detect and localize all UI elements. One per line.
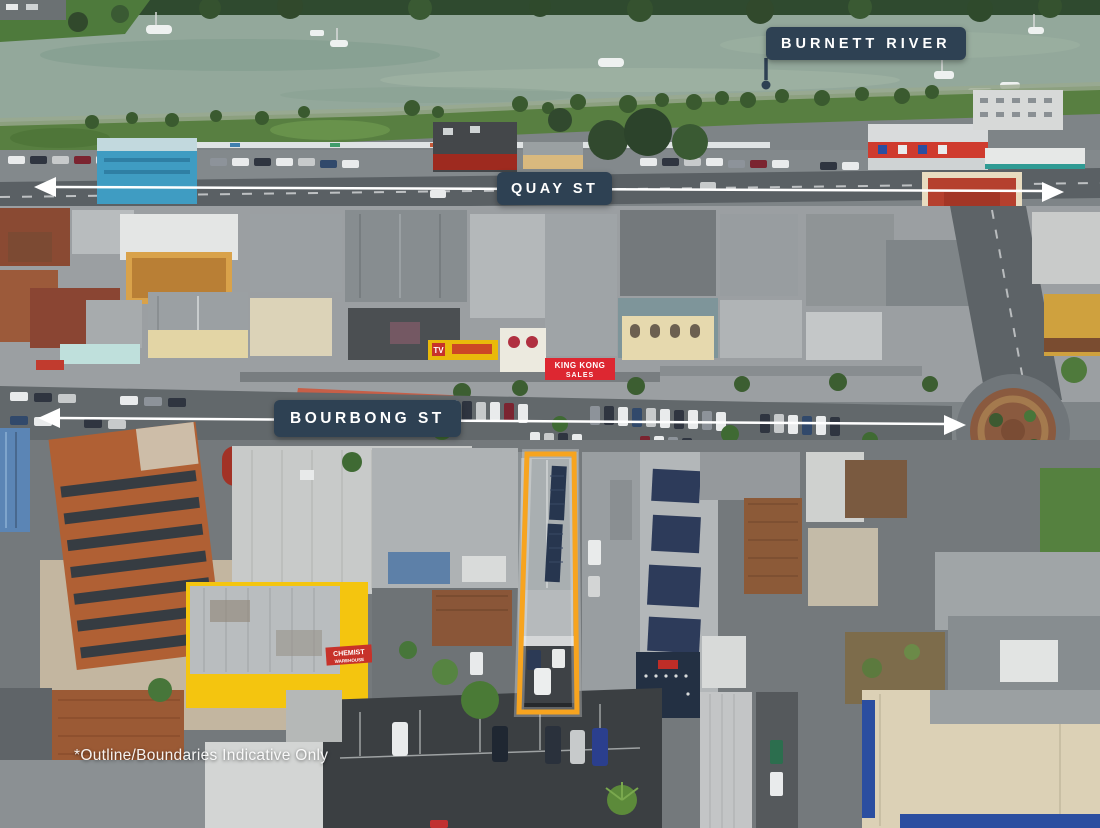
subject-building bbox=[518, 452, 578, 714]
bourbong-label-text: BOURBONG ST bbox=[290, 410, 445, 428]
aerial-photo-scene: TV KING KONG SALES bbox=[0, 0, 1100, 828]
street-label-bourbong: BOURBONG ST bbox=[274, 400, 461, 437]
kingkong-sign-line2: SALES bbox=[566, 372, 594, 379]
aerial-photo: TV KING KONG SALES bbox=[0, 0, 1100, 828]
street-label-quay: QUAY ST bbox=[497, 172, 612, 205]
river-label-text: BURNETT RIVER bbox=[781, 36, 951, 52]
tv-sign-text: TV bbox=[433, 346, 444, 355]
boundary-disclaimer: *Outline/Boundaries Indicative Only bbox=[74, 747, 328, 765]
river-label: BURNETT RIVER bbox=[766, 27, 966, 60]
quay-label-text: QUAY ST bbox=[511, 181, 598, 197]
kingkong-sign-line1: KING KONG bbox=[555, 361, 606, 370]
chemist-warehouse-sign: CHEMIST WAREHOUSE bbox=[325, 644, 372, 665]
